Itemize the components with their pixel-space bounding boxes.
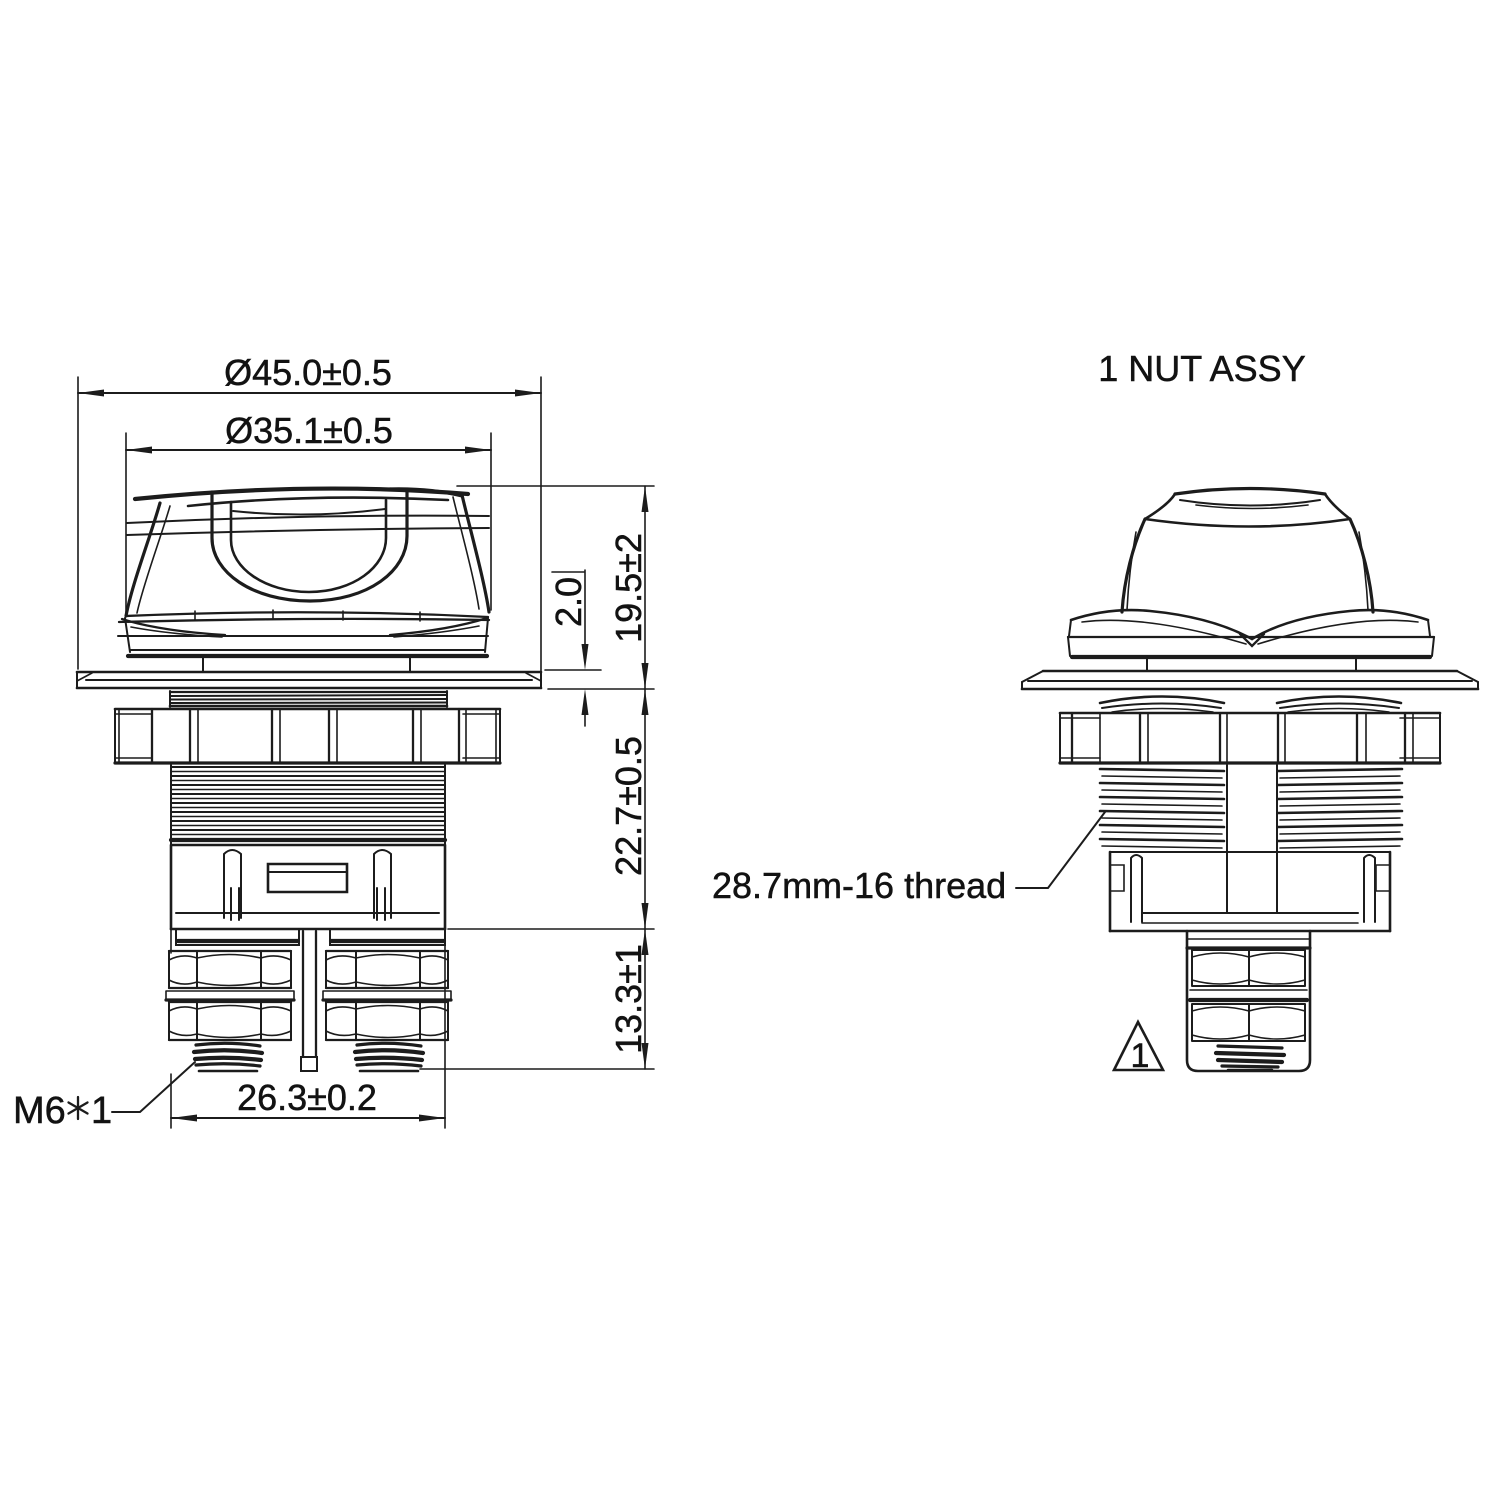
svg-text:28.7mm-16 thread: 28.7mm-16 thread (712, 865, 1006, 906)
svg-text:Ø35.1±0.5: Ø35.1±0.5 (225, 410, 393, 451)
svg-text:1: 1 (91, 1090, 112, 1132)
svg-text:1 NUT ASSY: 1 NUT ASSY (1098, 348, 1305, 389)
svg-text:26.3±0.2: 26.3±0.2 (237, 1077, 377, 1118)
svg-text:19.5±2: 19.5±2 (608, 533, 649, 643)
svg-text:M6: M6 (13, 1090, 66, 1132)
svg-text:13.3±1: 13.3±1 (608, 944, 649, 1054)
svg-text:2.0: 2.0 (548, 577, 589, 627)
svg-text:22.7±0.5: 22.7±0.5 (608, 736, 649, 876)
svg-text:Ø45.0±0.5: Ø45.0±0.5 (224, 352, 392, 393)
svg-text:1: 1 (1131, 1037, 1150, 1075)
